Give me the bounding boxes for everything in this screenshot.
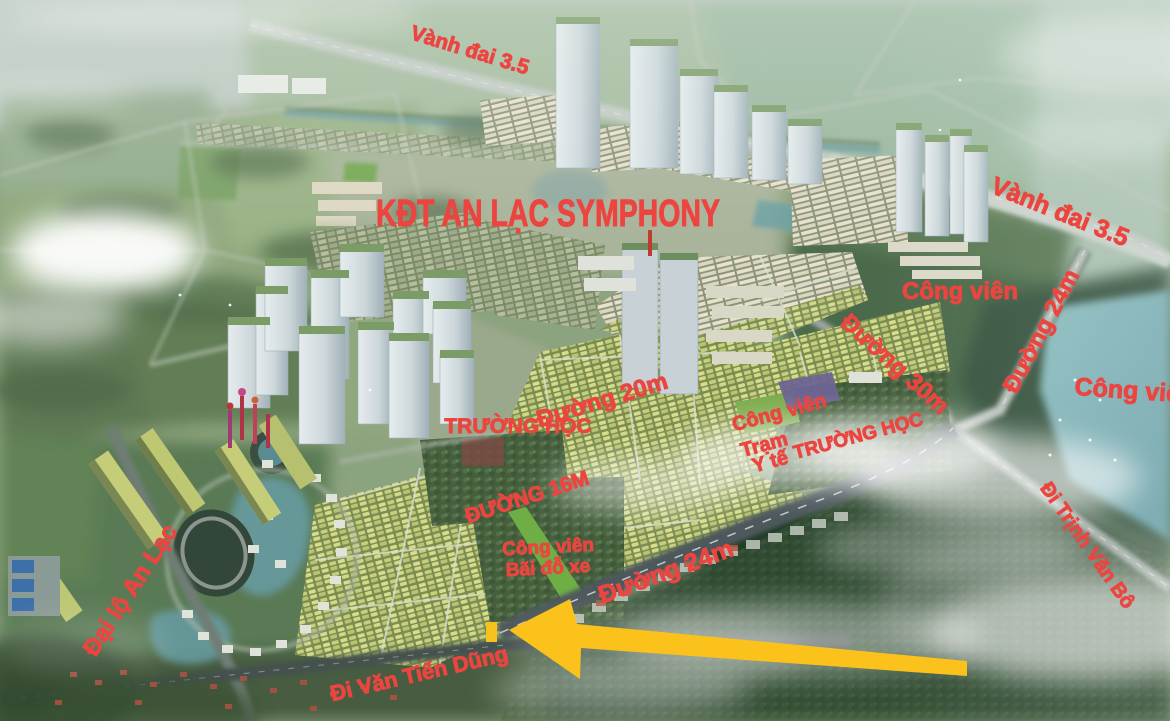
svg-text:TRƯỜNG HỌC: TRƯỜNG HỌC [444, 414, 591, 438]
svg-text:KĐT AN LẠC SYMPHONY: KĐT AN LẠC SYMPHONY [376, 193, 720, 235]
svg-text:Công viên: Công viên [902, 278, 1018, 305]
svg-text:Bãi đỗ xe: Bãi đỗ xe [505, 555, 591, 581]
